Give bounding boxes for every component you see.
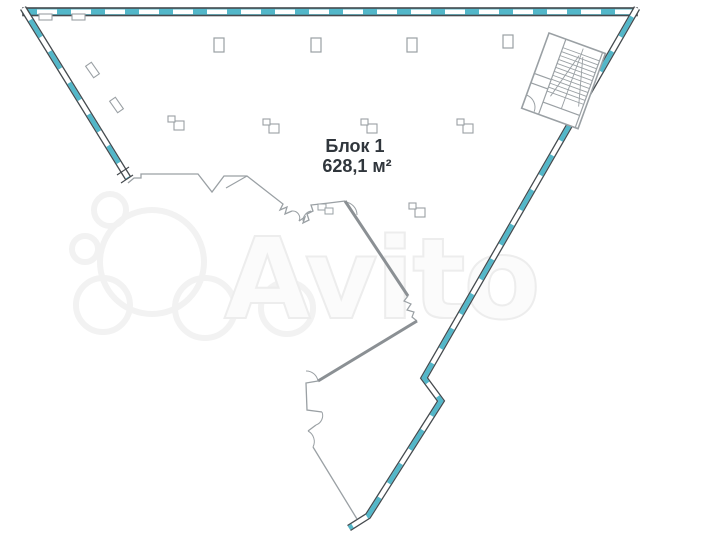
column — [39, 14, 52, 20]
block-label-group: Блок 1 628,1 м² — [322, 136, 391, 176]
top-window-wall — [23, 8, 637, 16]
column — [311, 38, 321, 52]
block-area-label: 628,1 м² — [322, 156, 391, 176]
watermark-text: Avito — [224, 215, 539, 345]
column-pair — [457, 119, 473, 133]
columns — [39, 14, 513, 217]
column-pair — [263, 119, 279, 133]
door-arc — [316, 412, 323, 425]
watermark-circle — [100, 210, 204, 314]
boundary-south-3 — [313, 447, 357, 519]
column — [110, 97, 124, 112]
door-arc — [308, 431, 314, 447]
door-arc — [306, 371, 318, 381]
boundary-south-1 — [306, 381, 322, 412]
block-name-label: Блок 1 — [325, 136, 384, 156]
left-window-wall — [23, 8, 133, 183]
floor-plan-svg: Avito — [0, 0, 716, 540]
column — [214, 38, 224, 52]
partition-triangle — [226, 176, 247, 188]
watermark-circle — [72, 236, 98, 262]
column — [72, 14, 85, 20]
stairwell — [522, 33, 606, 129]
door-leaf — [325, 208, 333, 214]
column — [407, 38, 417, 52]
column-pair — [168, 116, 184, 130]
column — [503, 35, 513, 48]
column — [86, 62, 100, 77]
boundary-south-2 — [308, 425, 316, 431]
column-pair — [361, 119, 377, 133]
floor-plan-page: Avito — [0, 0, 716, 540]
